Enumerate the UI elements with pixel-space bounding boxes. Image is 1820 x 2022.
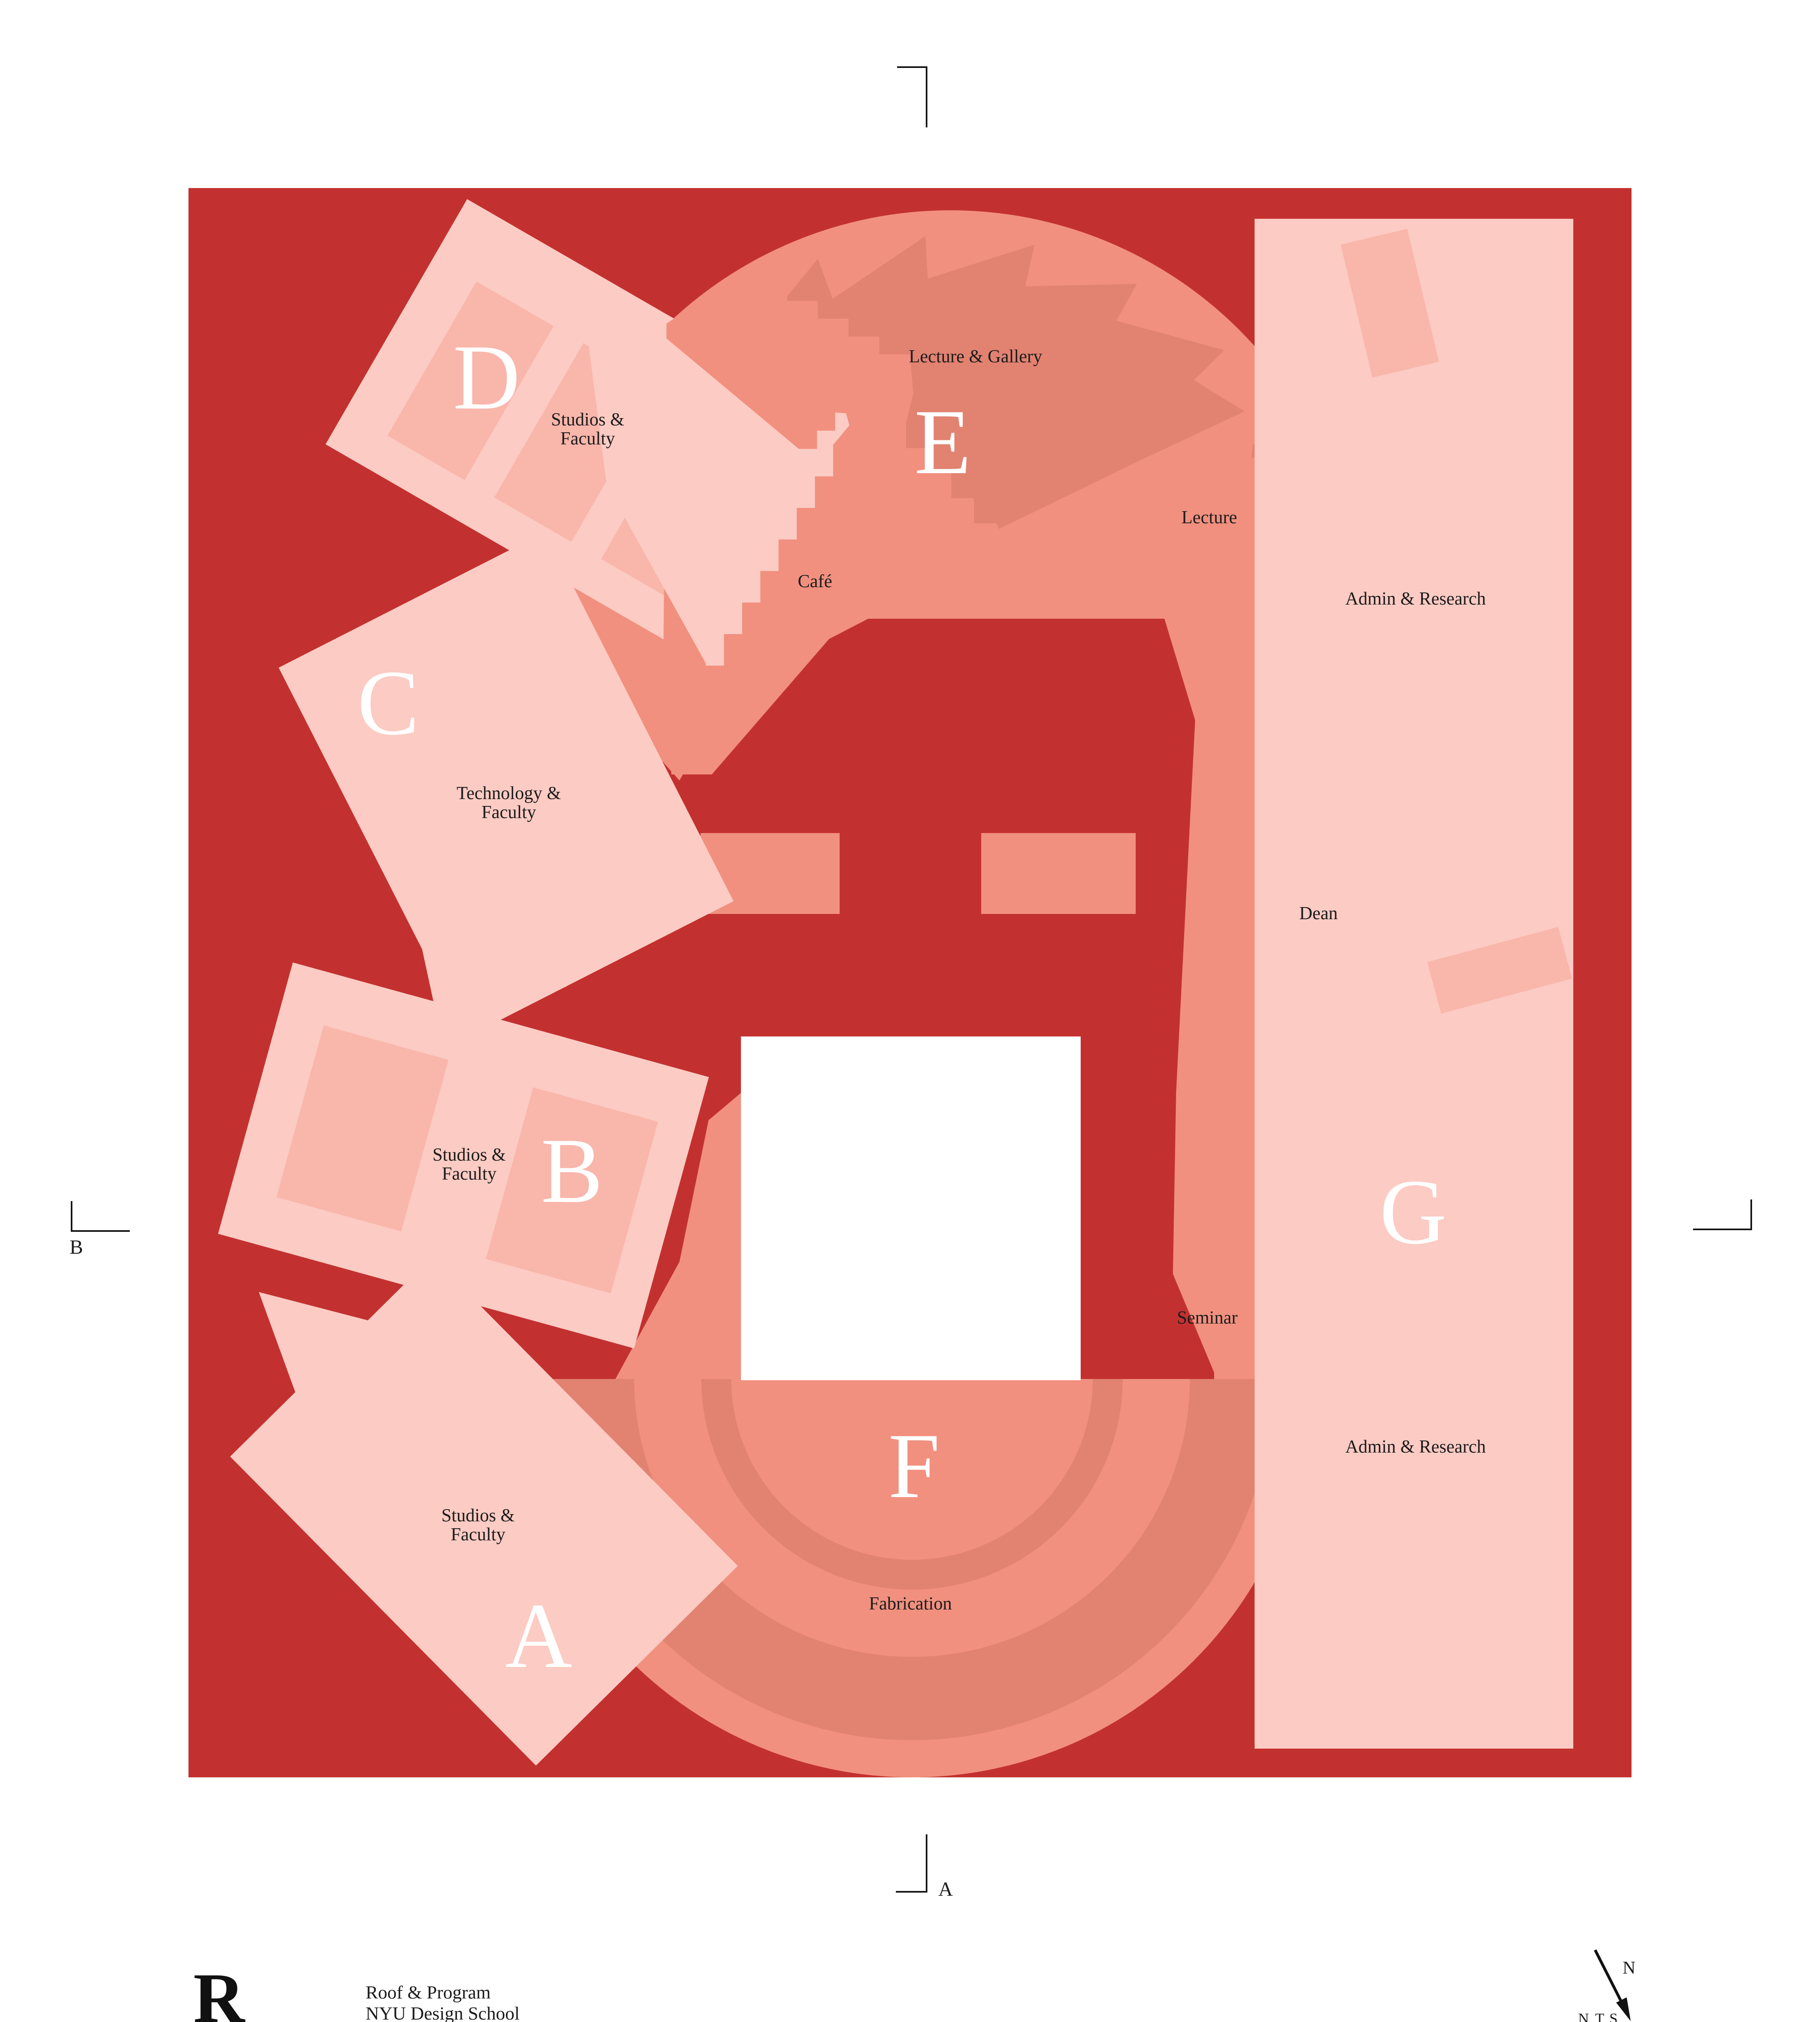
svg-text:Studios &Faculty: Studios &Faculty <box>441 1505 514 1544</box>
svg-text:F: F <box>888 1414 940 1517</box>
svg-text:Fabrication: Fabrication <box>869 1593 952 1614</box>
svg-text:C: C <box>357 651 419 754</box>
svg-text:E: E <box>914 390 971 493</box>
svg-text:B: B <box>541 1119 603 1222</box>
svg-text:R: R <box>193 1959 245 2022</box>
svg-text:A: A <box>938 1878 953 1900</box>
svg-text:Dean: Dean <box>1299 903 1338 923</box>
svg-text:A: A <box>505 1584 572 1687</box>
svg-text:Seminar: Seminar <box>1177 1307 1238 1328</box>
svg-text:G: G <box>1380 1160 1447 1263</box>
svg-text:D: D <box>453 326 520 429</box>
svg-text:N.T.S.: N.T.S. <box>1578 2011 1624 2022</box>
svg-text:Café: Café <box>798 571 832 591</box>
svg-text:B: B <box>70 1235 83 1258</box>
svg-text:Studios &Faculty: Studios &Faculty <box>432 1144 506 1184</box>
svg-text:N: N <box>1623 1958 1636 1978</box>
svg-text:Lecture & Gallery: Lecture & Gallery <box>909 346 1042 366</box>
svg-text:Lecture: Lecture <box>1181 507 1237 527</box>
svg-text:Admin & Research: Admin & Research <box>1345 1436 1486 1457</box>
svg-text:Studios &Faculty: Studios &Faculty <box>551 409 624 448</box>
svg-text:Admin & Research: Admin & Research <box>1345 588 1486 609</box>
